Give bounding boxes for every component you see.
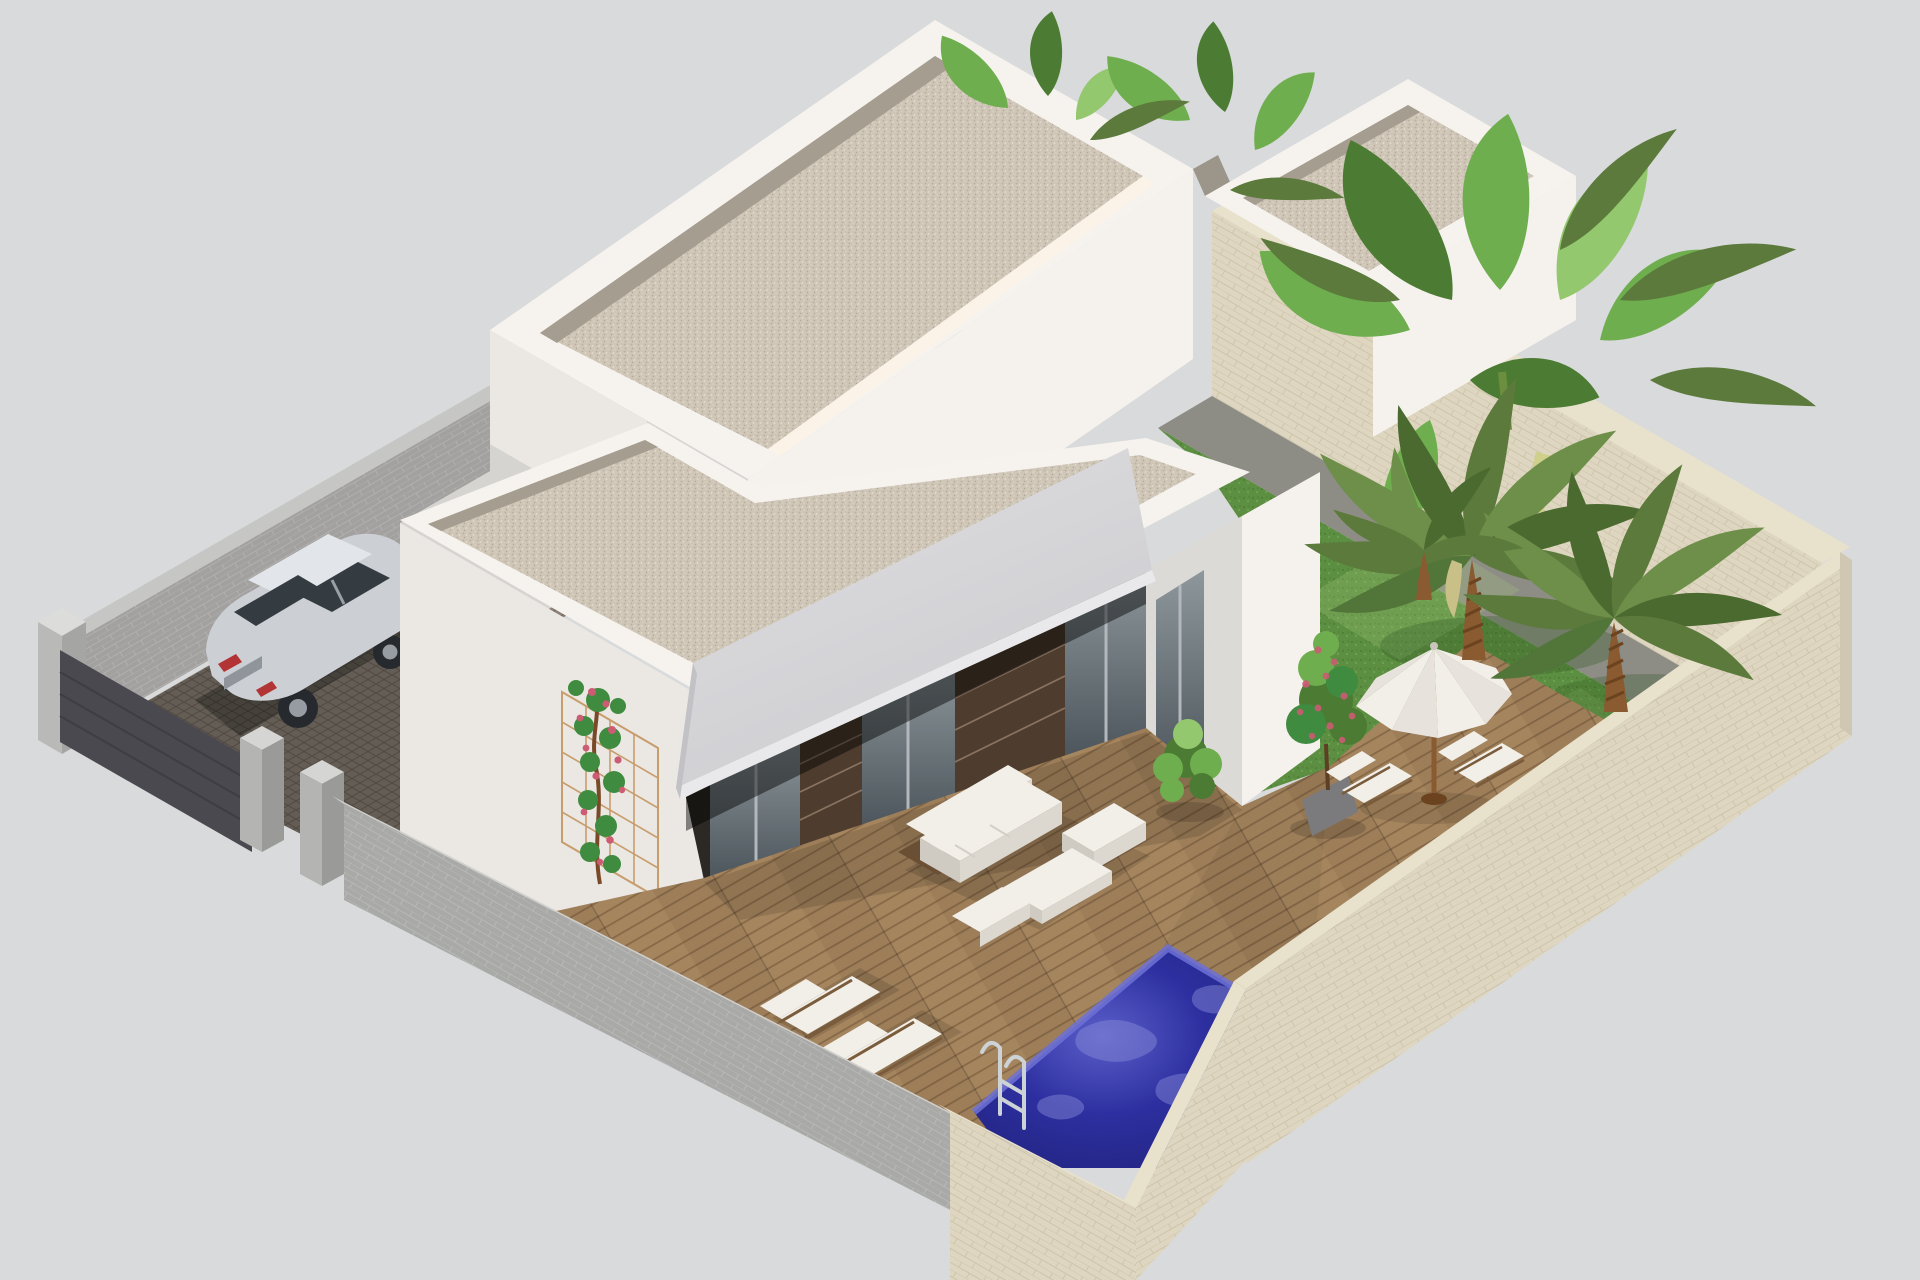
villa-render (0, 0, 1920, 1280)
corner-pillar-face (38, 622, 62, 754)
gate-pillar-side (322, 772, 344, 886)
gate-pillar-side (262, 738, 284, 852)
wall-corner-edge (1840, 552, 1852, 736)
gate-pillar-face (240, 738, 262, 852)
parasol-base (1421, 793, 1447, 805)
rear-rim (289, 699, 307, 717)
render-canvas (0, 0, 1920, 1280)
pool-wing-se-face (1242, 472, 1320, 806)
front-rim (383, 645, 398, 660)
gate-pillar-face (300, 772, 322, 886)
